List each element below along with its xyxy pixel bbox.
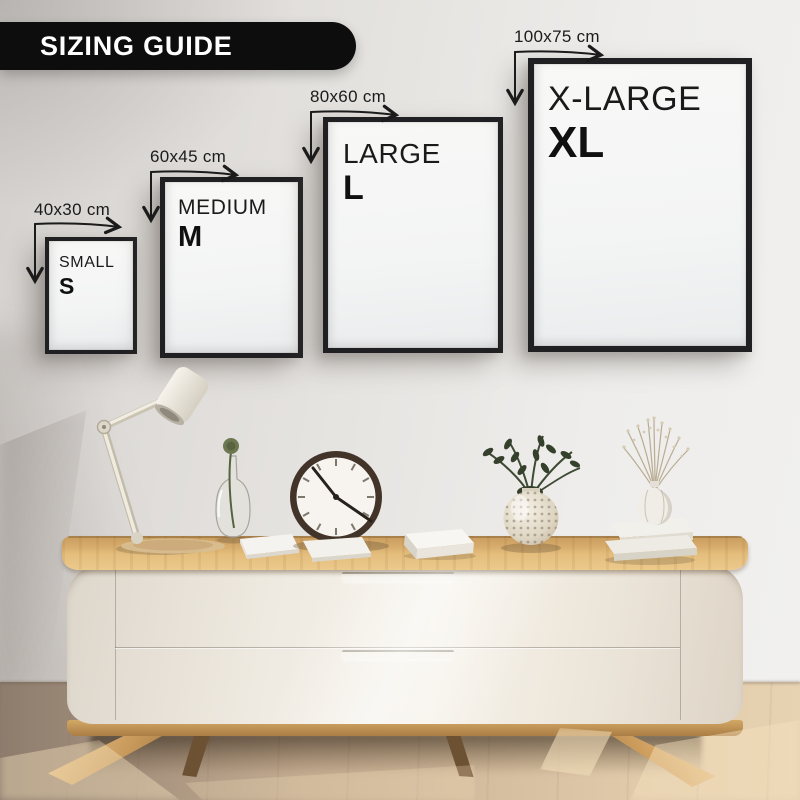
drawer-divider bbox=[115, 647, 680, 648]
sizing-guide-poster: SIZING GUIDE SMALL S MEDIUM M LARGE L X-… bbox=[0, 0, 800, 800]
panel-seam bbox=[115, 570, 116, 720]
sideboard bbox=[0, 0, 800, 800]
drawer-handle-bottom bbox=[342, 650, 454, 659]
cabinet-body bbox=[67, 566, 743, 724]
panel-seam bbox=[680, 570, 681, 720]
cabinet-shadow bbox=[90, 733, 702, 775]
cabinet-tabletop bbox=[62, 536, 748, 570]
drawer-handle-top bbox=[342, 572, 454, 581]
